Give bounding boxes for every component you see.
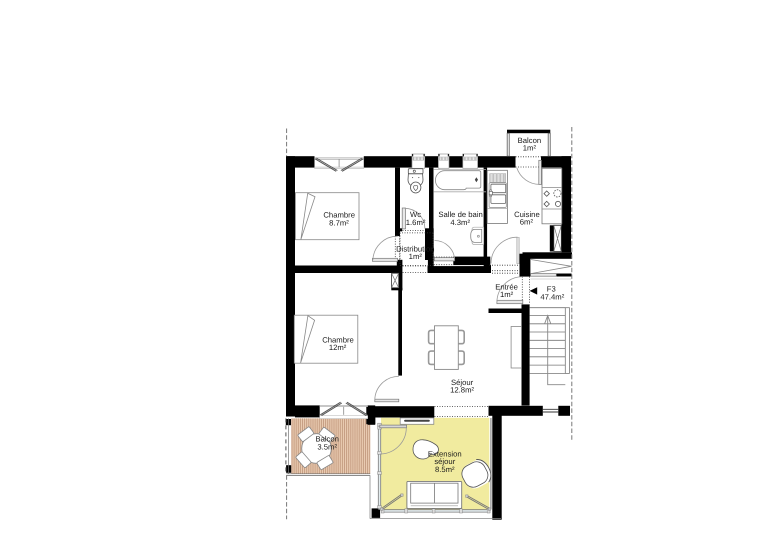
svg-text:1m²: 1m² xyxy=(523,144,537,153)
svg-text:1m²: 1m² xyxy=(409,252,423,261)
svg-text:4.3m²: 4.3m² xyxy=(450,218,470,227)
svg-text:12m²: 12m² xyxy=(329,343,347,352)
svg-text:8.5m²: 8.5m² xyxy=(435,465,455,474)
svg-text:1m²: 1m² xyxy=(500,290,514,299)
svg-text:12.8m²: 12.8m² xyxy=(450,386,474,395)
svg-text:6m²: 6m² xyxy=(520,217,534,226)
svg-text:1.6m²: 1.6m² xyxy=(406,218,426,227)
svg-text:8.7m²: 8.7m² xyxy=(329,218,349,227)
svg-text:47.4m²: 47.4m² xyxy=(540,292,564,301)
svg-text:3.5m²: 3.5m² xyxy=(317,442,337,451)
